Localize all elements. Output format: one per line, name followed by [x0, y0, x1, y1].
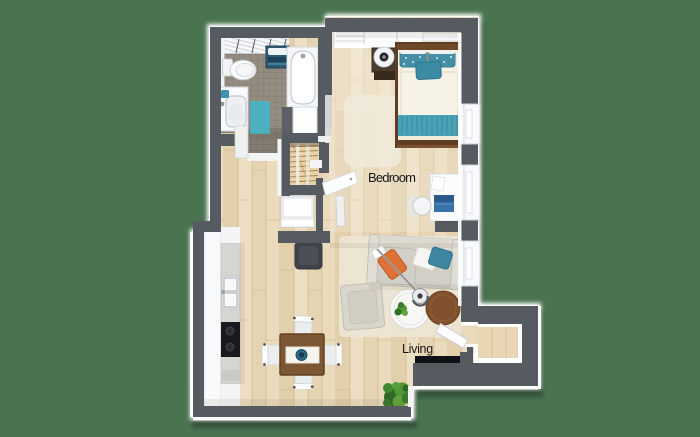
svg-text:Living: Living: [402, 342, 433, 356]
svg-text:Bedroom: Bedroom: [368, 170, 415, 185]
